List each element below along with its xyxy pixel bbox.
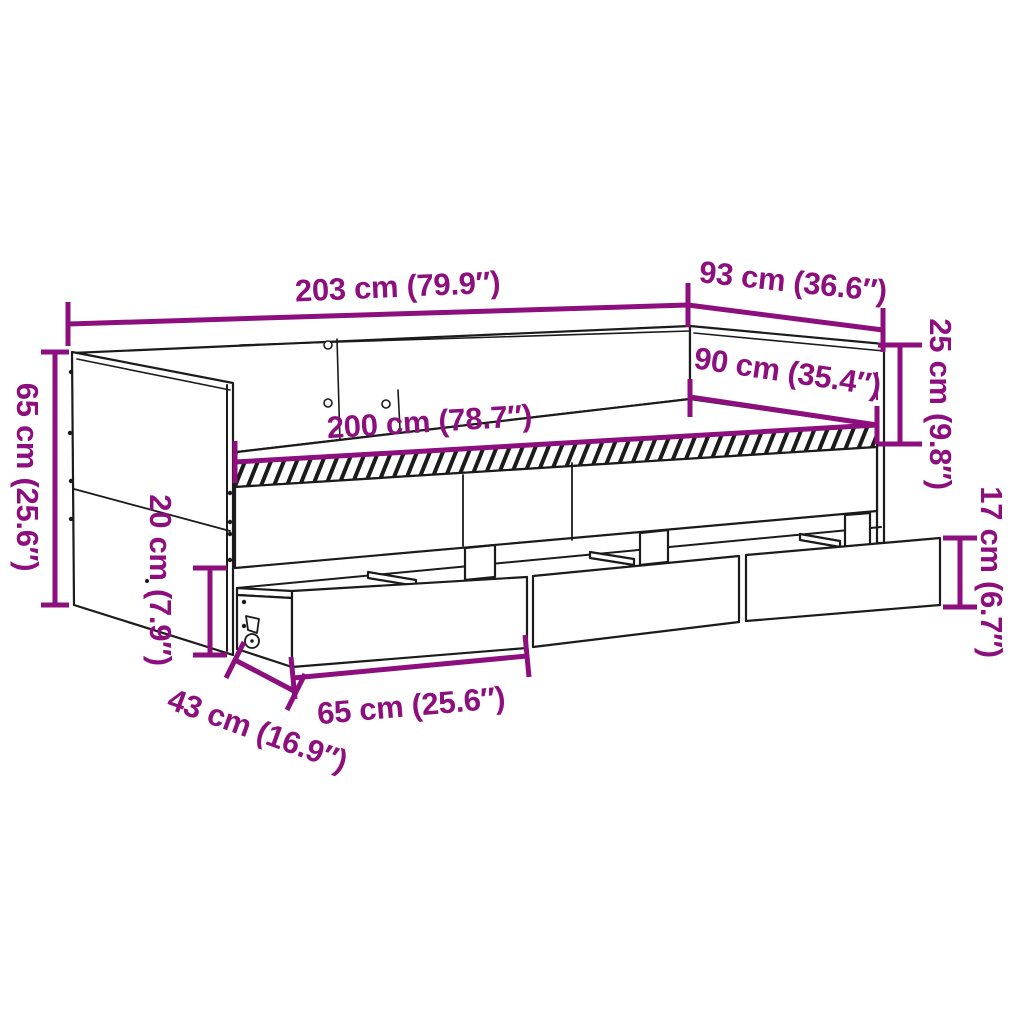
screw-dot — [242, 624, 246, 628]
dim-label-drawer-height: 17 cm (6.7″) — [974, 486, 1009, 658]
dim-label-rail-to-slats: 25 cm (9.8″) — [923, 318, 958, 490]
caster-hub — [250, 639, 254, 643]
screw-hole-icon — [324, 341, 332, 349]
screw-dot — [242, 600, 246, 604]
dim-label-total-height: 65 cm (25.6″) — [10, 383, 45, 571]
caster-bracket — [246, 616, 259, 633]
daybed-dimension-diagram: 203 cm (79.9″) 93 cm (36.6″) 25 cm (9.8″… — [0, 0, 1024, 1024]
frame-divider — [640, 530, 668, 565]
frame-divider — [465, 545, 495, 580]
product-dimension-image: 203 cm (79.9″) 93 cm (36.6″) 25 cm (9.8″… — [0, 0, 1024, 1024]
screw-hole-icon — [324, 399, 332, 407]
dim-label-underbed-clearance: 20 cm (7.9″) — [143, 494, 178, 666]
